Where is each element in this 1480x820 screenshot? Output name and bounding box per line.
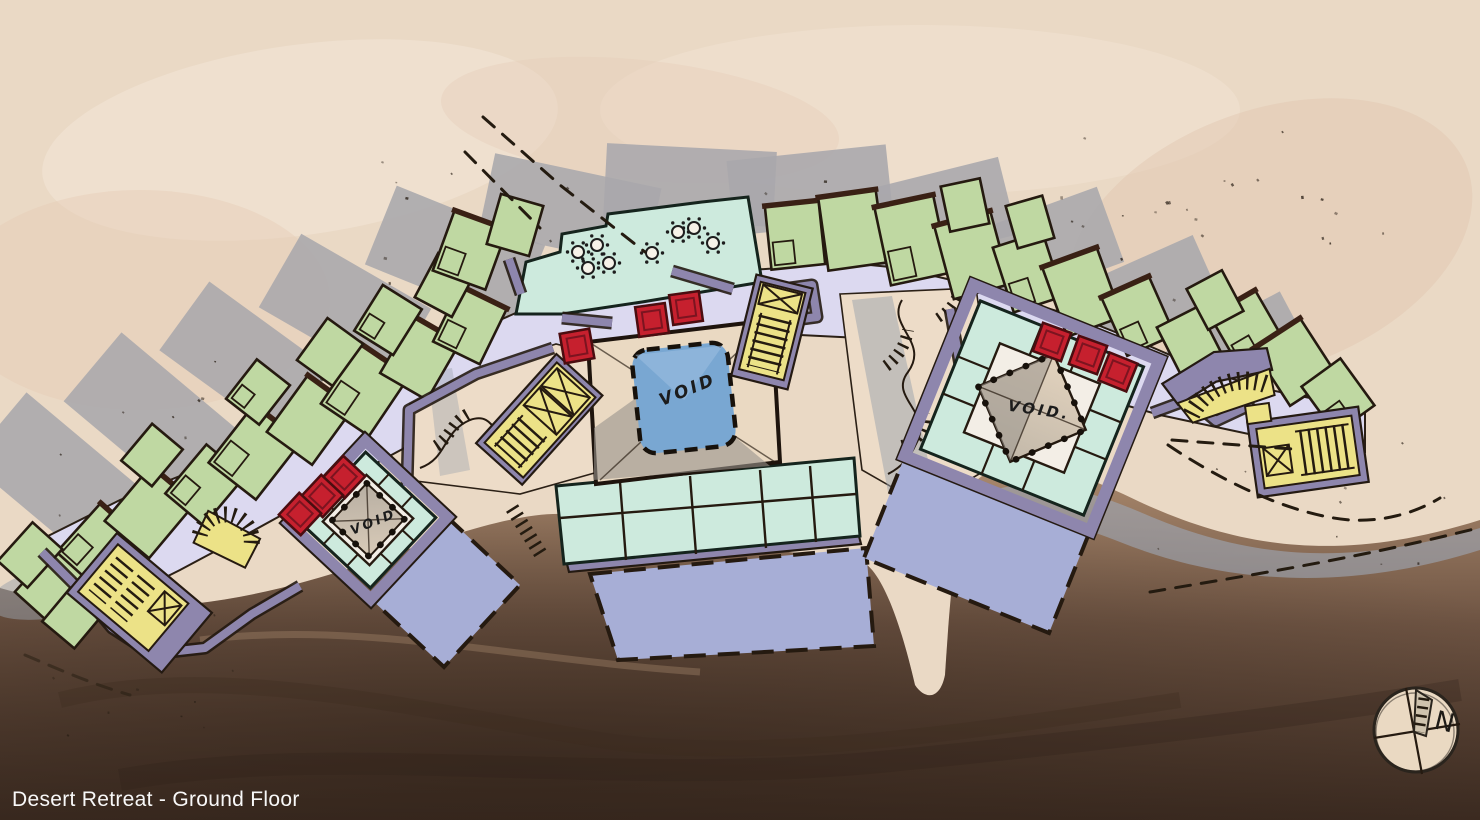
- chair-dot: [613, 252, 616, 255]
- speck: [1224, 180, 1226, 182]
- speck: [388, 282, 391, 285]
- plan-svg: VOID VOID: [0, 0, 1480, 820]
- stair-shaft: [1256, 416, 1359, 489]
- speck: [1336, 536, 1338, 538]
- speck: [1329, 242, 1331, 244]
- chair-dot: [687, 217, 690, 220]
- chair-dot: [671, 239, 674, 242]
- building: [818, 189, 886, 270]
- red-marker: [635, 303, 669, 337]
- chair-dot: [698, 217, 701, 220]
- speck: [194, 701, 196, 703]
- speck: [824, 180, 827, 183]
- chair-dot: [687, 235, 690, 238]
- speck: [1417, 562, 1419, 564]
- chair-dot: [703, 226, 706, 229]
- chair-dot: [571, 241, 574, 244]
- table-top: [688, 222, 700, 234]
- chair-dot: [618, 261, 621, 264]
- chair-dot: [661, 251, 664, 254]
- red-marker-outer: [635, 303, 669, 337]
- chair-dot: [592, 275, 595, 278]
- chair-dot: [582, 241, 585, 244]
- red-marker: [560, 329, 595, 364]
- wall-segment: [562, 318, 612, 323]
- chair-dot: [613, 270, 616, 273]
- stair-landing: [1245, 403, 1271, 424]
- speck: [1122, 215, 1124, 216]
- red-marker: [669, 291, 703, 325]
- chair-dot: [706, 250, 709, 253]
- speck: [1060, 196, 1063, 199]
- speck: [1382, 232, 1384, 234]
- building-footprint: [941, 178, 990, 231]
- chair-dot: [645, 260, 648, 263]
- table-top: [603, 257, 615, 269]
- chair-dot: [606, 243, 609, 246]
- red-marker-outer: [560, 329, 595, 364]
- site-plan: VOID VOID: [0, 0, 1480, 820]
- speck: [1071, 221, 1073, 223]
- chair-dot: [576, 266, 579, 269]
- chair-dot: [602, 252, 605, 255]
- chair-dot: [698, 235, 701, 238]
- chair-dot: [682, 239, 685, 242]
- chair-dot: [597, 266, 600, 269]
- chair-dot: [585, 243, 588, 246]
- chair-dot: [587, 250, 590, 253]
- speck: [108, 712, 110, 714]
- plan-title: Desert Retreat - Ground Floor: [12, 788, 300, 812]
- chair-dot: [602, 270, 605, 273]
- chair-dot: [581, 275, 584, 278]
- chair-dot: [571, 259, 574, 262]
- table-top: [646, 247, 658, 259]
- chair-dot: [581, 257, 584, 260]
- chair-dot: [590, 234, 593, 237]
- chair-dot: [601, 234, 604, 237]
- chair-dot: [671, 221, 674, 224]
- chair-dot: [566, 250, 569, 253]
- speck: [1301, 196, 1304, 199]
- building: [941, 178, 990, 231]
- chair-dot: [706, 232, 709, 235]
- chair-dot: [701, 241, 704, 244]
- table-top: [591, 239, 603, 251]
- chair-dot: [597, 261, 600, 264]
- chair-dot: [656, 260, 659, 263]
- chair-dot: [722, 241, 725, 244]
- table-top: [707, 237, 719, 249]
- chair-dot: [592, 257, 595, 260]
- table-top: [572, 246, 584, 258]
- building: [765, 200, 825, 269]
- chair-dot: [682, 226, 685, 229]
- chair-dot: [645, 242, 648, 245]
- chair-dot: [682, 221, 685, 224]
- speck: [184, 436, 187, 439]
- chair-dot: [666, 230, 669, 233]
- chair-dot: [656, 242, 659, 245]
- table-top: [582, 262, 594, 274]
- speck: [1380, 564, 1382, 565]
- building-footprint: [818, 189, 886, 270]
- red-marker-outer: [669, 291, 703, 325]
- chair-dot: [717, 250, 720, 253]
- speck: [395, 182, 397, 184]
- chair-dot: [717, 232, 720, 235]
- chair-dot: [590, 252, 593, 255]
